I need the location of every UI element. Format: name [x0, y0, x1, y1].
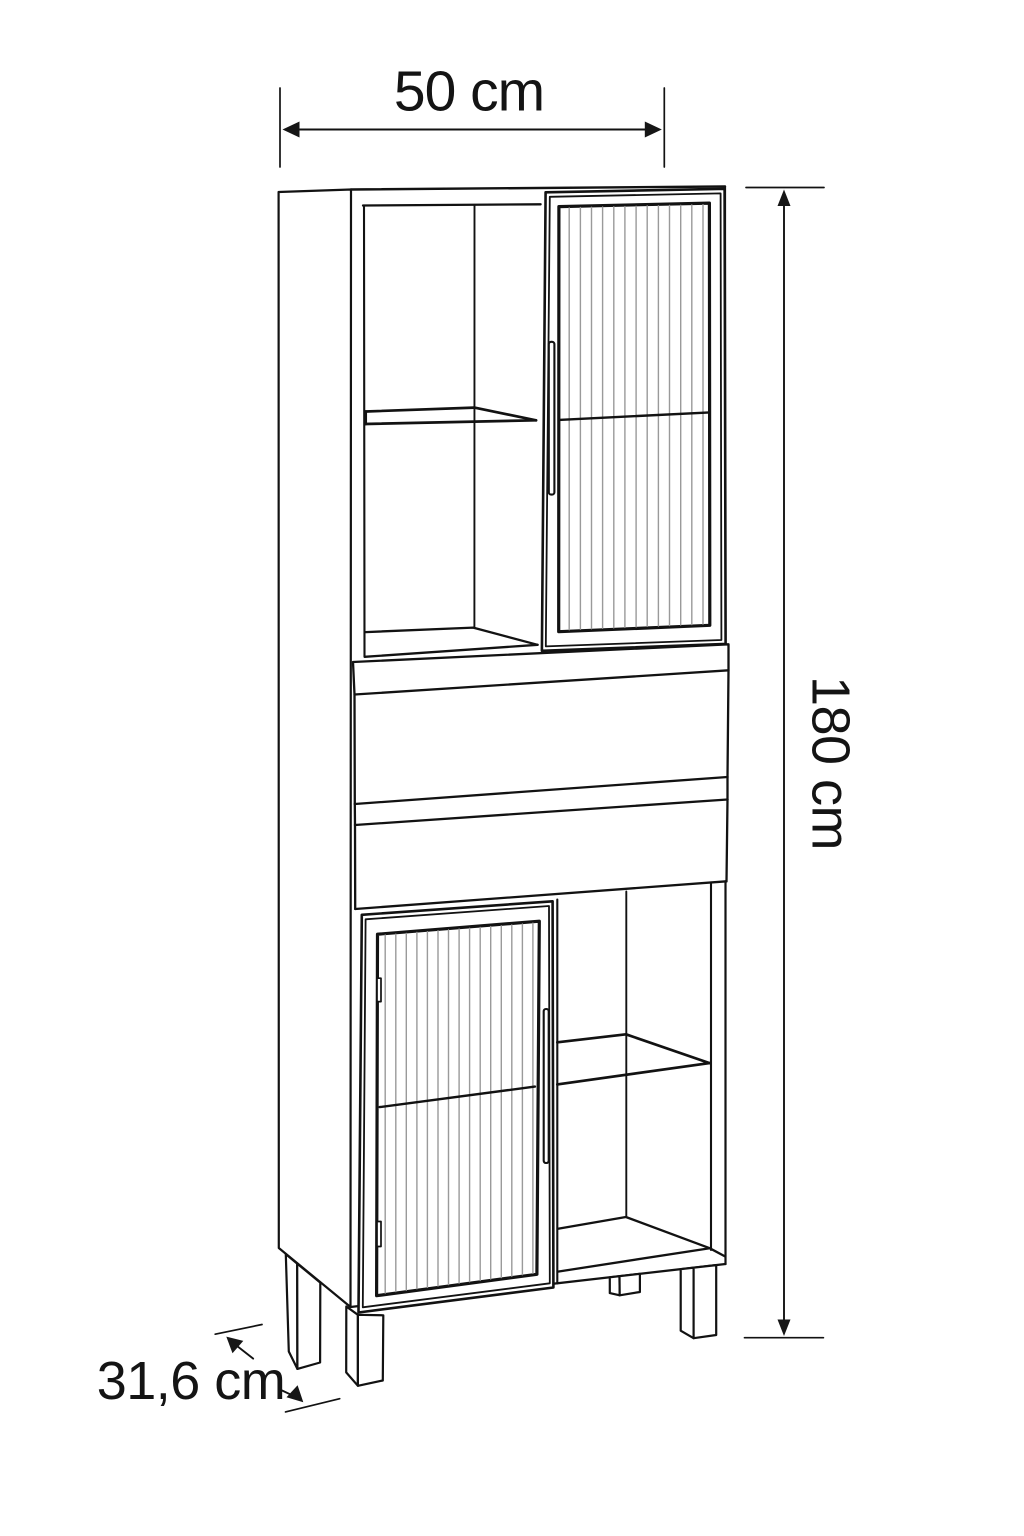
svg-text:31,6 cm: 31,6 cm — [97, 1351, 286, 1411]
svg-text:180 cm: 180 cm — [801, 676, 861, 850]
svg-text:50 cm: 50 cm — [394, 60, 544, 124]
